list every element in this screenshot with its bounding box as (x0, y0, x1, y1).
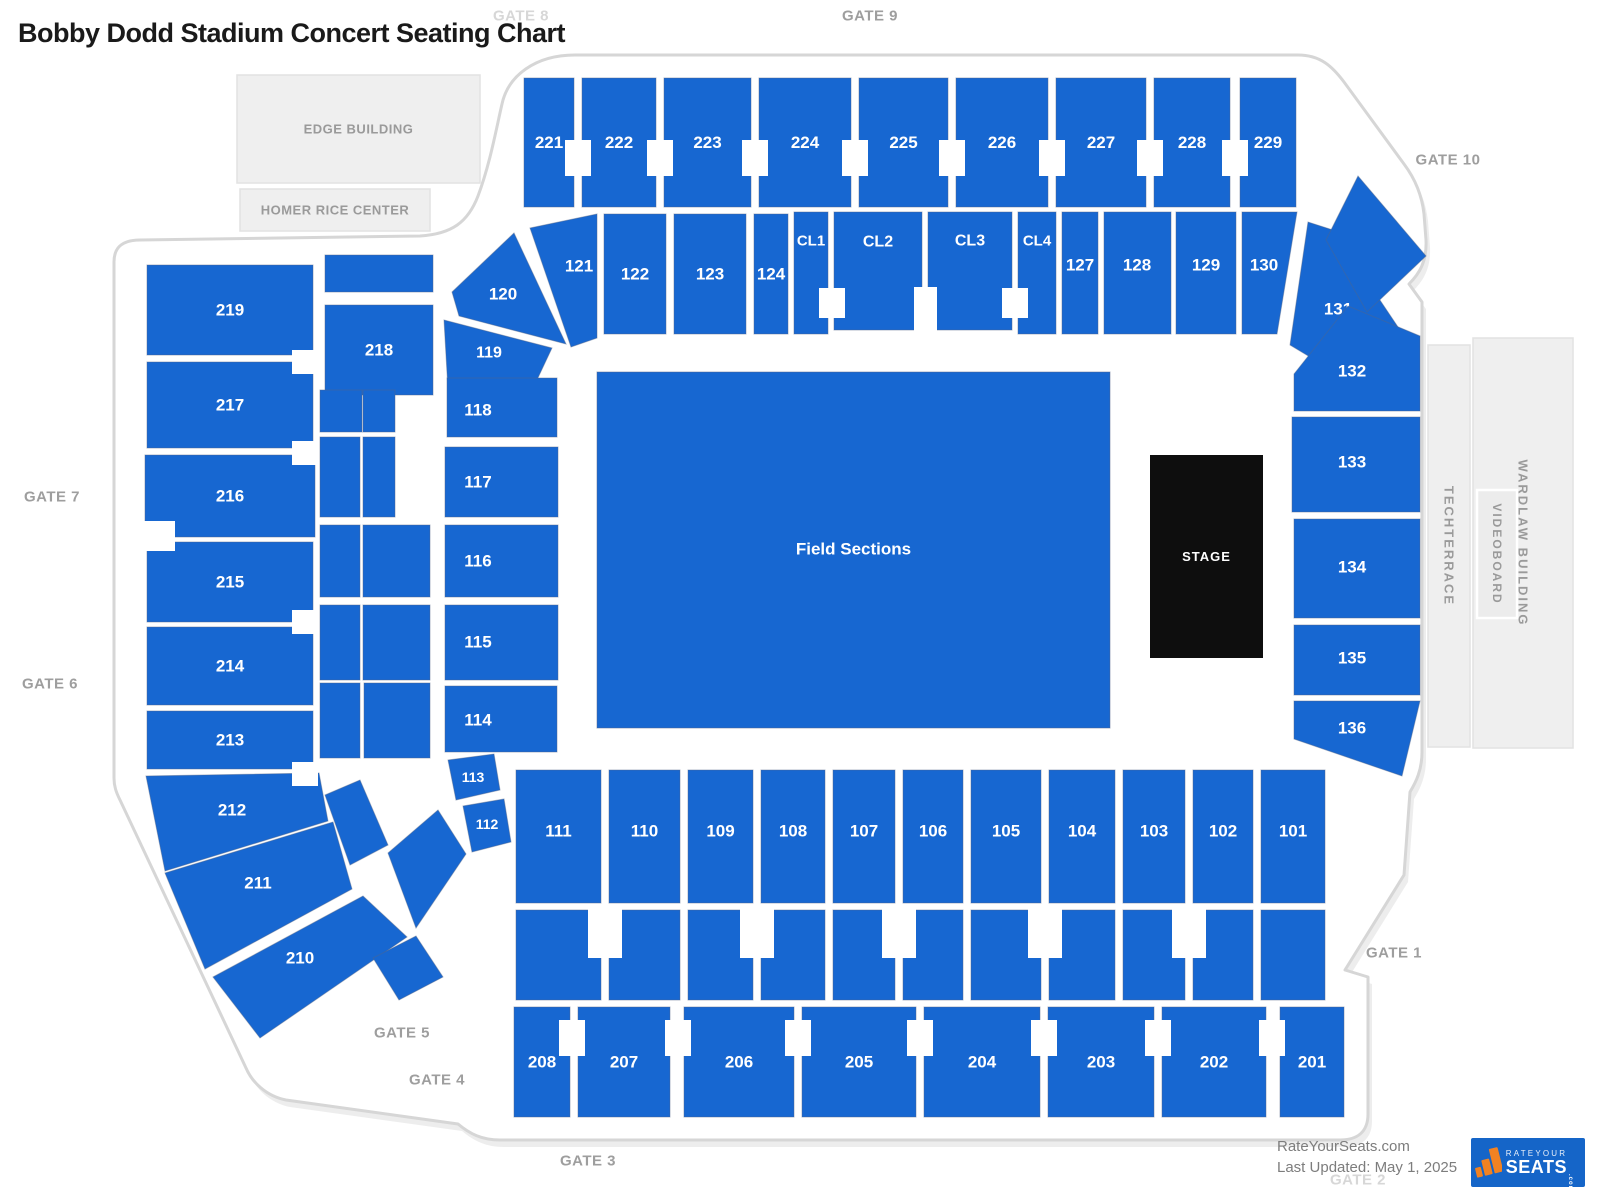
section-111-label: 111 (545, 822, 572, 841)
section-134-label: 134 (1338, 558, 1367, 577)
stadium-map: EDGE BUILDINGHOMER RICE CENTERTECHTERRAC… (0, 0, 1600, 1199)
section-band-101 (1261, 910, 1325, 1000)
walkway-notch-27 (1259, 1020, 1285, 1056)
building-homer-rice-center-label: HOMER RICE CENTER (261, 203, 410, 218)
walkway-notch-17 (740, 908, 774, 958)
logo-bars-icon (1471, 1146, 1502, 1180)
section-112-label: 112 (476, 816, 499, 832)
section-105-label: 105 (992, 822, 1020, 841)
section-229-label: 229 (1254, 133, 1282, 152)
section-222-label: 222 (605, 133, 633, 152)
building-videoboard-label: VIDEOBOARD (1490, 503, 1504, 604)
walkway-notch-7 (1222, 140, 1248, 176)
section-109-label: 109 (706, 822, 734, 841)
field-sections-label: Field Sections (796, 540, 911, 559)
section-strip-6 (363, 525, 430, 597)
section-118-label: 118 (464, 401, 491, 420)
walkway-notch-8 (819, 288, 845, 318)
section-strip-1 (320, 390, 362, 432)
walkway-notch-21 (559, 1020, 585, 1056)
walkway-notch-19 (1028, 908, 1062, 958)
section-CL1-label: CL1 (797, 233, 825, 250)
section-210-label: 210 (286, 949, 314, 968)
section-213-label: 213 (216, 731, 244, 750)
section-strip-9 (320, 683, 360, 758)
walkway-notch-5 (1039, 140, 1065, 176)
section-strip-7 (320, 605, 360, 680)
section-119-label: 119 (476, 345, 502, 362)
section-113-label: 113 (462, 769, 485, 785)
section-104-label: 104 (1068, 822, 1097, 841)
walkway-notch-16 (588, 908, 622, 958)
section-228-label: 228 (1178, 133, 1206, 152)
walkway-notch-3 (842, 140, 868, 176)
walkway-notch-4 (939, 140, 965, 176)
section-114[interactable] (445, 686, 557, 752)
section-strip-5 (320, 525, 360, 597)
section-216-label: 216 (216, 487, 244, 506)
gate-4-label: GATE 4 (409, 1072, 465, 1089)
walkway-notch-1 (647, 140, 673, 176)
section-207-label: 207 (610, 1053, 638, 1072)
section-130-label: 130 (1250, 256, 1278, 275)
section-121-label: 121 (565, 257, 593, 276)
section-214-label: 214 (216, 657, 245, 676)
section-117[interactable] (445, 447, 558, 517)
section-128-label: 128 (1123, 256, 1151, 275)
stage-label: STAGE (1182, 549, 1231, 564)
walkway-notch-20 (1172, 908, 1206, 958)
section-204-label: 204 (968, 1053, 997, 1072)
section-117-label: 117 (464, 473, 491, 492)
section-115-label: 115 (464, 633, 491, 652)
section-103-label: 103 (1140, 822, 1168, 841)
section-201-label: 201 (1298, 1053, 1326, 1072)
section-CL2-label: CL2 (863, 234, 893, 251)
walkway-notch-25 (1031, 1020, 1057, 1056)
building-techterrace-label: TECHTERRACE (1442, 486, 1457, 606)
section-124-label: 124 (757, 265, 786, 284)
walkway-notch-13 (292, 610, 318, 634)
section-116[interactable] (445, 525, 558, 597)
section-132-label: 132 (1338, 362, 1366, 381)
footer-credit: RateYourSeats.com Last Updated: May 1, 2… (1277, 1136, 1457, 1178)
walkway-notch-22 (665, 1020, 691, 1056)
section-135-label: 135 (1338, 649, 1366, 668)
walkway-notch-18 (882, 908, 916, 958)
walkway-notch-2 (742, 140, 768, 176)
rateyourseats-logo[interactable]: RATEYOUR SEATS.com (1471, 1138, 1585, 1187)
section-CL3-label: CL3 (955, 233, 985, 250)
walkway-notch-11 (292, 350, 318, 374)
section-133-label: 133 (1338, 453, 1366, 472)
section-108-label: 108 (779, 822, 807, 841)
section-101-label: 101 (1279, 822, 1307, 841)
section-219-label: 219 (216, 301, 244, 320)
section-120-label: 120 (489, 285, 517, 304)
section-129-label: 129 (1192, 256, 1220, 275)
section-116-label: 116 (464, 552, 491, 571)
gate-1-label: GATE 1 (1366, 945, 1422, 962)
gate-5-label: GATE 5 (374, 1025, 430, 1042)
walkway-notch-10 (1002, 288, 1028, 318)
section-122-label: 122 (621, 265, 649, 284)
section-208-label: 208 (528, 1053, 556, 1072)
section-217-label: 217 (216, 396, 244, 415)
section-203-label: 203 (1087, 1053, 1115, 1072)
section-102-label: 102 (1209, 822, 1237, 841)
gate-10-label: GATE 10 (1416, 152, 1481, 169)
section-215-label: 215 (216, 573, 244, 592)
walkway-notch-26 (1145, 1020, 1171, 1056)
section-212-label: 212 (218, 801, 246, 820)
section-115[interactable] (445, 605, 558, 680)
walkway-notch-0 (565, 140, 591, 176)
section-202-label: 202 (1200, 1053, 1228, 1072)
section-strip-10 (364, 683, 430, 758)
section-123-label: 123 (696, 265, 724, 284)
section-strip-2 (363, 390, 395, 432)
section-206-label: 206 (725, 1053, 753, 1072)
walkway-notch-24 (907, 1020, 933, 1056)
section-221-label: 221 (535, 133, 563, 152)
section-107-label: 107 (850, 822, 878, 841)
section-225-label: 225 (889, 133, 917, 152)
section-205-label: 205 (845, 1053, 873, 1072)
gate-3-label: GATE 3 (560, 1153, 616, 1170)
section-226-label: 226 (988, 133, 1016, 152)
section-227-label: 227 (1087, 133, 1115, 152)
footer-updated: Last Updated: May 1, 2025 (1277, 1157, 1457, 1178)
walkway-notch-15 (138, 521, 175, 551)
section-CL4-label: CL4 (1023, 233, 1052, 250)
walkway-notch-6 (1137, 140, 1163, 176)
section-106-label: 106 (919, 822, 947, 841)
section-136-label: 136 (1338, 719, 1366, 738)
logo-wordmark: RATEYOUR SEATS.com (1506, 1150, 1585, 1176)
page-title: Bobby Dodd Stadium Concert Seating Chart (18, 18, 565, 49)
section-strip-3 (320, 437, 360, 517)
section-223-label: 223 (693, 133, 721, 152)
section-127-label: 127 (1066, 256, 1094, 275)
section-strip-218-upper (325, 255, 433, 292)
walkway-notch-23 (785, 1020, 811, 1056)
footer-site: RateYourSeats.com (1277, 1136, 1457, 1157)
gate-9-label: GATE 9 (842, 8, 898, 25)
section-110-label: 110 (631, 822, 658, 841)
walkway-notch-14 (292, 762, 318, 786)
section-CL2[interactable] (834, 212, 922, 330)
section-224-label: 224 (791, 133, 820, 152)
walkway-notch-9 (914, 287, 937, 334)
section-114-label: 114 (464, 711, 492, 730)
gate-7-label: GATE 7 (24, 489, 80, 506)
building-edge-building-label: EDGE BUILDING (304, 122, 414, 137)
walkway-notch-12 (292, 441, 318, 465)
section-211-label: 211 (244, 874, 271, 893)
section-strip-4 (363, 437, 395, 517)
section-218-label: 218 (365, 341, 393, 360)
section-strip-8 (363, 605, 430, 680)
section-CL3[interactable] (928, 212, 1012, 330)
gate-6-label: GATE 6 (22, 676, 78, 693)
